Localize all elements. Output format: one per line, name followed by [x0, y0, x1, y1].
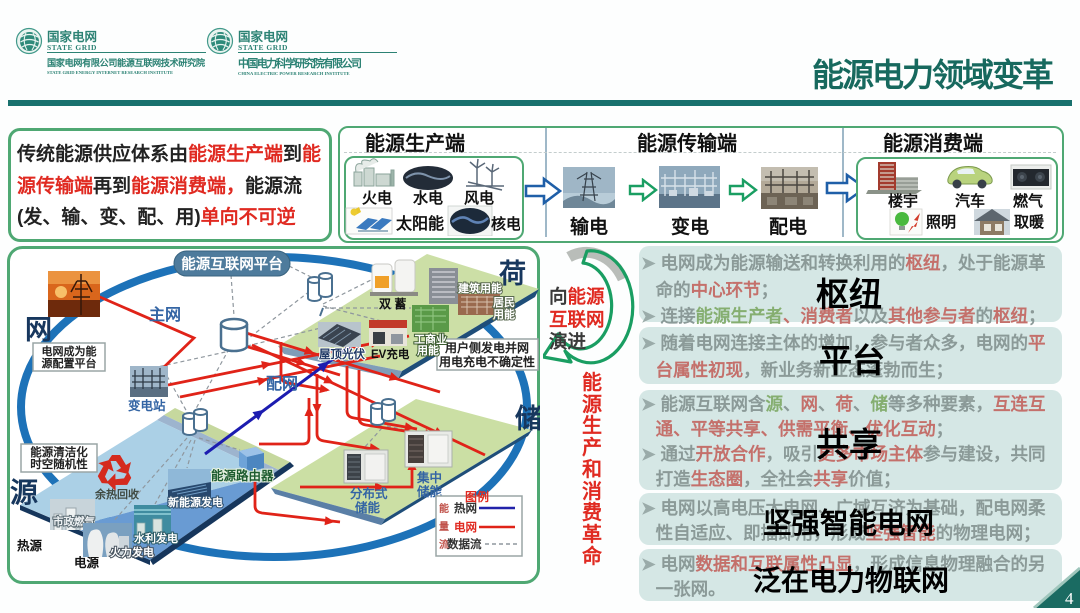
svg-text:居民: 居民 [493, 296, 515, 309]
svg-text:核电: 核电 [491, 215, 520, 233]
svg-text:燃气: 燃气 [1013, 192, 1043, 210]
svg-text:国家电网: 国家电网 [47, 29, 97, 44]
svg-text:中国电力科学研究院有限公司: 中国电力科学研究院有限公司 [238, 56, 362, 70]
svg-text:电网: 电网 [454, 520, 477, 534]
svg-text:照明: 照明 [926, 214, 956, 231]
svg-text:变电站: 变电站 [128, 398, 166, 413]
svg-text:水电: 水电 [413, 189, 443, 207]
svg-text:国家电网有限公司能源互联网技术研究院: 国家电网有限公司能源互联网技术研究院 [47, 57, 206, 68]
svg-text:网: 网 [25, 315, 52, 345]
svg-text:荷: 荷 [499, 259, 526, 289]
svg-text:用电充电不确定性: 用电充电不确定性 [438, 354, 535, 369]
svg-text:取暖: 取暖 [1014, 213, 1045, 231]
svg-text:量: 量 [439, 520, 449, 533]
svg-text:EV充电: EV充电 [371, 347, 410, 361]
svg-text:用能: 用能 [417, 343, 439, 357]
svg-text:主网: 主网 [149, 305, 181, 324]
svg-text:用户侧发电并网: 用户侧发电并网 [444, 340, 529, 355]
svg-text:源: 源 [10, 477, 38, 508]
svg-text:STATE GRID: STATE GRID [238, 43, 288, 52]
svg-text:用能: 用能 [493, 307, 515, 321]
svg-text:时空随机性: 时空随机性 [30, 457, 88, 471]
svg-text:热网: 热网 [454, 501, 477, 515]
svg-text:集中: 集中 [416, 470, 442, 485]
svg-text:太阳能: 太阳能 [395, 214, 444, 233]
svg-text:水利发电: 水利发电 [134, 531, 178, 545]
svg-text:源配置平台: 源配置平台 [42, 356, 97, 370]
svg-text:工商业: 工商业 [414, 332, 447, 346]
svg-text:能源清洁化: 能源清洁化 [30, 445, 88, 459]
svg-text:余热回收: 余热回收 [94, 487, 139, 501]
svg-text:热源: 热源 [17, 538, 43, 553]
svg-text:建筑用能: 建筑用能 [458, 281, 502, 295]
svg-text:分布式: 分布式 [350, 486, 388, 501]
svg-text:能源互联网平台: 能源互联网平台 [181, 255, 283, 273]
svg-text:新能源发电: 新能源发电 [168, 495, 223, 509]
svg-text:图例: 图例 [465, 489, 489, 504]
svg-text:双 蓄: 双 蓄 [379, 296, 406, 311]
svg-text:CHINA ELECTRIC POWER RESEARCH: CHINA ELECTRIC POWER RESEARCH INSTITUTE [238, 71, 350, 76]
svg-text:储能: 储能 [354, 500, 381, 515]
svg-text:4: 4 [1065, 589, 1074, 608]
svg-text:风电: 风电 [464, 189, 494, 207]
svg-text:屋顶光伏: 屋顶光伏 [319, 347, 365, 361]
svg-text:STATE GRID ENERGY INTERNET RES: STATE GRID ENERGY INTERNET RESEARCH INST… [47, 70, 173, 75]
svg-text:楼宇: 楼宇 [888, 192, 918, 210]
svg-text:数据流: 数据流 [447, 537, 482, 551]
svg-text:能源路由器: 能源路由器 [211, 468, 274, 483]
svg-text:配网: 配网 [266, 375, 298, 393]
svg-text:火电: 火电 [362, 189, 392, 207]
svg-text:国家电网: 国家电网 [238, 29, 288, 44]
svg-text:电网成为能: 电网成为能 [42, 344, 97, 358]
svg-text:电源: 电源 [74, 555, 100, 570]
svg-text:火力发电: 火力发电 [110, 545, 154, 559]
svg-text:储: 储 [515, 404, 540, 434]
svg-text:STATE GRID: STATE GRID [47, 43, 97, 52]
svg-text:能: 能 [439, 502, 449, 515]
svg-text:汽车: 汽车 [955, 192, 985, 210]
